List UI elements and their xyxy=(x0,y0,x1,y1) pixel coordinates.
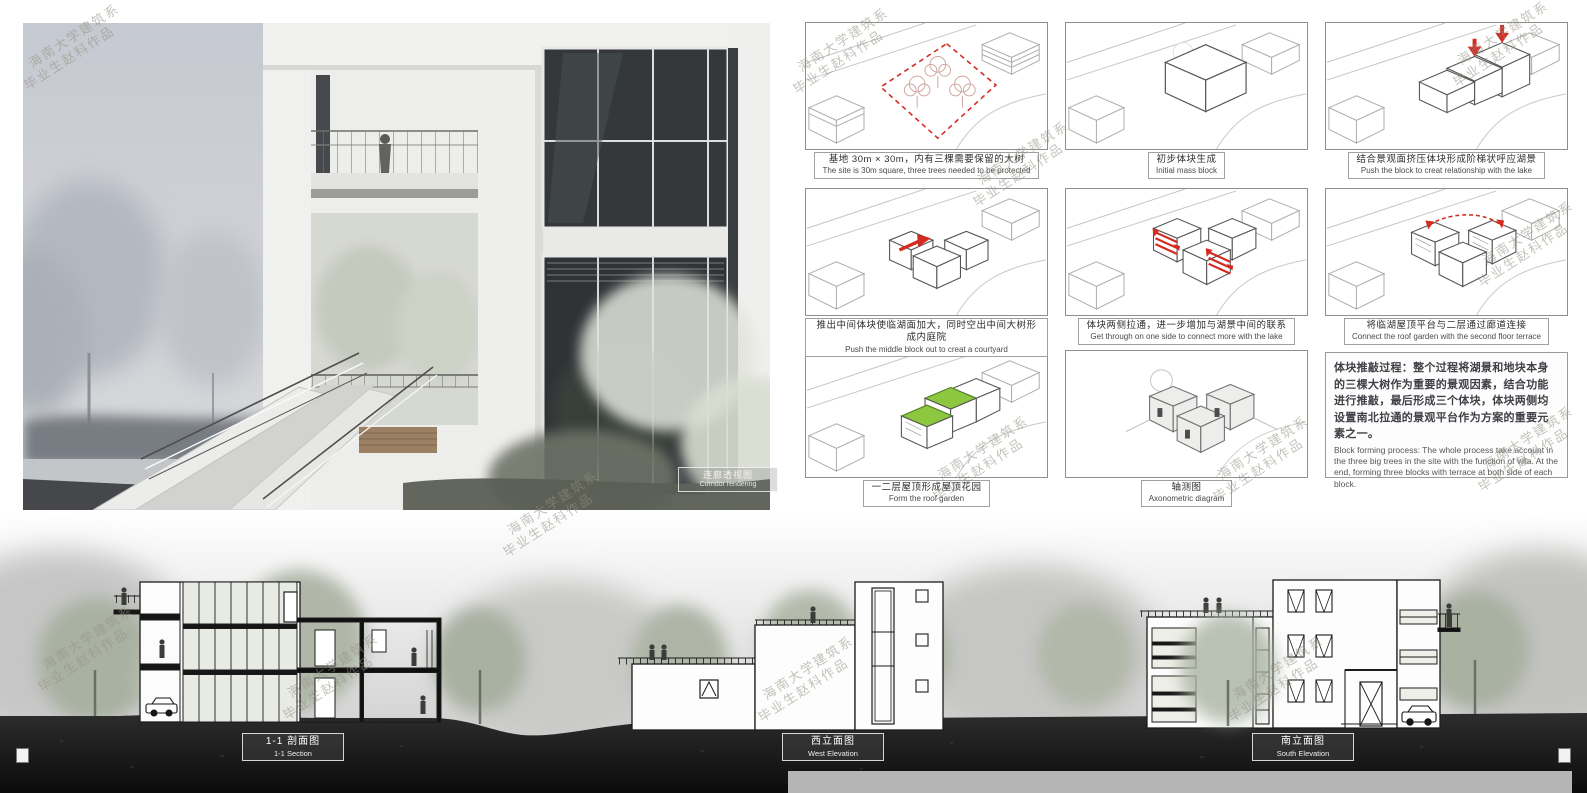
caption-get-through-en: Get through on one side to connect more … xyxy=(1086,332,1286,342)
label-west-elevation: 西立面图 West Elevation xyxy=(782,733,884,761)
page-marker-left xyxy=(16,748,29,763)
caption-roof-garden-en: Form the roof garden xyxy=(871,494,981,504)
label-section-cn: 1-1 剖面图 xyxy=(245,736,341,749)
label-south-elevation-cn: 南立面图 xyxy=(1255,736,1351,749)
label-section: 1-1 剖面图 1-1 Section xyxy=(242,733,344,761)
caption-site-en: The site is 30m square, three trees need… xyxy=(822,166,1030,176)
stepped-block-diagram xyxy=(1326,23,1567,149)
push-middle-diagram xyxy=(806,189,1047,315)
caption-stepped-en: Push the block to creat relationship wit… xyxy=(1356,166,1536,176)
corridor-rendering xyxy=(23,23,770,510)
connect-roof-diagram xyxy=(1326,189,1567,315)
label-section-en: 1-1 Section xyxy=(245,749,341,758)
get-through-diagram xyxy=(1066,189,1307,315)
site-diagram xyxy=(806,23,1047,149)
caption-connect-roof-cn: 将临湖屋顶平台与二层通过廊道连接 xyxy=(1352,320,1541,332)
caption-axonometric-cn: 轴测图 xyxy=(1149,482,1225,494)
caption-push-middle: 推出中间体块使临湖面加大，同时空出中间大树形成内庭院Push the middl… xyxy=(805,318,1048,357)
diagram-panel-connect-roof xyxy=(1325,188,1568,316)
caption-roof-garden-cn: 一二层屋顶形成屋顶花园 xyxy=(871,482,981,494)
block-forming-note-cn: 体块推敲过程：整个过程将湖景和地块本身的三棵大树作为重要的景观因素，结合功能进行… xyxy=(1334,360,1559,443)
caption-push-middle-cn: 推出中间体块使临湖面加大，同时空出中间大树形成内庭院 xyxy=(813,320,1040,345)
page-marker-right xyxy=(1558,748,1571,763)
caption-get-through: 体块两侧拉通，进一步增加与湖景中间的联系Get through on one s… xyxy=(1065,318,1308,345)
label-south-elevation-en: South Elevation xyxy=(1255,749,1351,758)
caption-site-cn: 基地 30m × 30m，内有三棵需要保留的大树 xyxy=(822,154,1030,166)
diagram-panel-push-middle xyxy=(805,188,1048,316)
caption-stepped-cn: 结合景观面挤压体块形成阶梯状呼应湖景 xyxy=(1356,154,1536,166)
diagram-panel-initial-mass xyxy=(1065,22,1308,150)
rendering-caption-en: Corridor rendering xyxy=(682,481,774,489)
caption-connect-roof: 将临湖屋顶平台与二层通过廊道连接Connect the roof garden … xyxy=(1325,318,1568,345)
diagram-panel-get-through xyxy=(1065,188,1308,316)
caption-site: 基地 30m × 30m，内有三棵需要保留的大树The site is 30m … xyxy=(805,152,1048,179)
caption-push-middle-en: Push the middle block out to creat a cou… xyxy=(813,345,1040,355)
initial-mass-diagram xyxy=(1066,23,1307,149)
caption-get-through-cn: 体块两侧拉通，进一步增加与湖景中间的联系 xyxy=(1086,320,1286,332)
diagram-panel-axonometric xyxy=(1065,350,1308,478)
rendering-caption-cn: 连廊透视图 xyxy=(682,470,774,481)
roof-garden-diagram xyxy=(806,351,1047,477)
corridor-rendering-image xyxy=(23,23,770,510)
caption-initial-mass: 初步体块生成Initial mass block xyxy=(1065,152,1308,179)
caption-stepped: 结合景观面挤压体块形成阶梯状呼应湖景Push the block to crea… xyxy=(1325,152,1568,179)
diagram-panel-roof-garden xyxy=(805,350,1048,478)
block-forming-note-en: Block forming process: The whole process… xyxy=(1334,445,1559,491)
caption-roof-garden: 一二层屋顶形成屋顶花园Form the roof garden xyxy=(805,480,1048,507)
caption-initial-mass-cn: 初步体块生成 xyxy=(1156,154,1217,166)
caption-axonometric-en: Axonometric diagram xyxy=(1149,494,1225,504)
label-west-elevation-en: West Elevation xyxy=(785,749,881,758)
label-west-elevation-cn: 西立面图 xyxy=(785,736,881,749)
caption-axonometric: 轴测图Axonometric diagram xyxy=(1065,480,1308,507)
diagram-panel-stepped xyxy=(1325,22,1568,150)
rendering-caption: 连廊透视图 Corridor rendering xyxy=(678,467,778,492)
caption-connect-roof-en: Connect the roof garden with the second … xyxy=(1352,332,1541,342)
axonometric-diagram xyxy=(1066,351,1307,477)
caption-initial-mass-en: Initial mass block xyxy=(1156,166,1217,176)
label-south-elevation: 南立面图 South Elevation xyxy=(1252,733,1354,761)
diagram-panel-site xyxy=(805,22,1048,150)
block-forming-note: 体块推敲过程：整个过程将湖景和地块本身的三棵大树作为重要的景观因素，结合功能进行… xyxy=(1325,352,1568,478)
